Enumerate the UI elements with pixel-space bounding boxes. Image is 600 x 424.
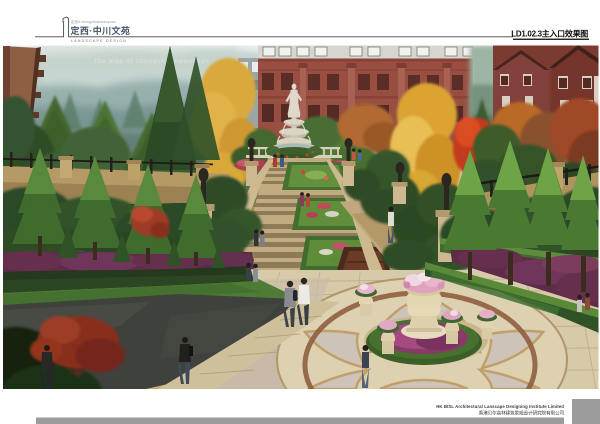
svg-text:定西·中川文苑: 定西·中川文苑 bbox=[70, 25, 131, 36]
svg-text:HK BISL Architectural Lanscape: HK BISL Architectural Lanscape Designing… bbox=[436, 404, 564, 409]
svg-text:香港贝尔高林建筑景观设计研究院有限公司: 香港贝尔高林建筑景观设计研究院有限公司 bbox=[479, 410, 565, 417]
svg-text:the map of zhongchuanwenyuan: the map of zhongchuanwenyuan bbox=[95, 59, 210, 65]
svg-text:LD1.02.3主入口效果图: LD1.02.3主入口效果图 bbox=[511, 29, 588, 39]
svg-text:LANDSCAPE DESIGN: LANDSCAPE DESIGN bbox=[71, 39, 127, 43]
svg-text:定西Ⅱ·zhongchuanwenyuan: 定西Ⅱ·zhongchuanwenyuan bbox=[71, 19, 116, 24]
